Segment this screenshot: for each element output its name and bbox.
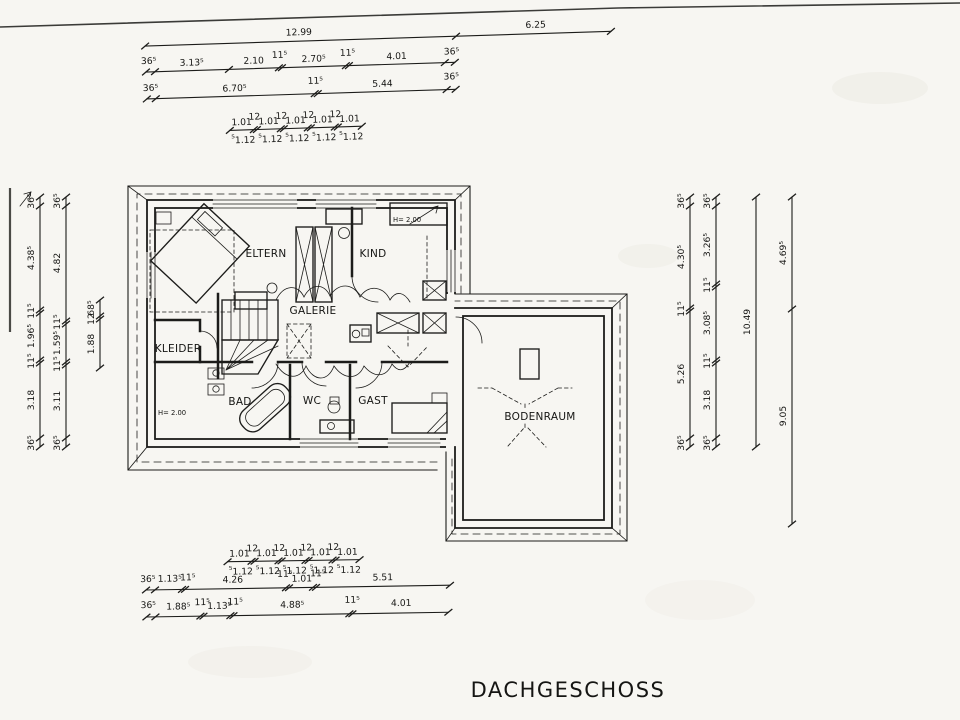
room-label-bodenraum: BODENRAUM [504, 411, 575, 423]
dim-label: 1.12 [343, 131, 364, 143]
room-label-galerie: GALERIE [290, 305, 337, 317]
dim-label: 4.30⁵ [676, 245, 687, 269]
dim-label: 1.12 [340, 565, 361, 576]
dim-label: 11⁵ [227, 596, 243, 607]
dim-label: 36⁵ [143, 83, 159, 94]
dim-label: 1.01 [292, 573, 313, 584]
plan-title: DACHGESCHOSS [471, 678, 666, 702]
dim-label: 1.12 [235, 135, 256, 147]
dim-label: 36⁵ [444, 46, 460, 57]
nightstand [156, 212, 171, 224]
dim-label: 36⁵ [443, 71, 459, 82]
page-edge-line [0, 3, 960, 27]
dim-label: 4.88⁵ [280, 600, 305, 611]
dim-label: 36⁵ [676, 435, 687, 451]
dim-label: 12 [86, 313, 97, 325]
room-label-wc: WC [303, 395, 321, 407]
dim-label: 3.11 [52, 391, 63, 411]
dim-label: 1.59⁵ [52, 331, 63, 355]
dim-label: 11⁵ [310, 568, 326, 579]
dim-label: 11⁵ [344, 595, 360, 606]
dim-label: 1.12 [316, 132, 337, 144]
dim-label: 1.01 [337, 547, 358, 558]
room-label-gast: GAST [358, 395, 388, 407]
dim-label: 3.13⁵ [179, 57, 204, 69]
scanned-floorplan-page: 12.99 6.25 36⁵ 3.13⁵ 2.10 11⁵ 2.70⁵ 11⁵ … [0, 0, 960, 720]
dim-label: 6.70⁵ [222, 83, 247, 95]
floorplan-drawing: 12.99 6.25 36⁵ 3.13⁵ 2.10 11⁵ 2.70⁵ 11⁵ … [0, 0, 960, 720]
dim-label: 11⁵ [702, 353, 713, 369]
interior-walls [155, 208, 447, 439]
dim-label: 11⁵ [26, 353, 37, 369]
dim-label: 36⁵ [702, 435, 713, 451]
dim-label: 5.51 [373, 572, 394, 583]
dim-label: 11⁵ [307, 75, 323, 86]
dim-label: 10.49 [742, 309, 753, 335]
height-note-kleider: H= 2.00 [158, 409, 186, 417]
dim-label: 11⁵ [272, 50, 288, 61]
dim-label: 36⁵ [702, 193, 713, 209]
room-label-bad: BAD [228, 396, 251, 408]
dresser-eltern [235, 283, 277, 309]
dim-label: 36⁵ [140, 600, 156, 611]
dim-label: 4.38⁵ [26, 246, 37, 270]
dim-label: 12.99 [285, 27, 312, 39]
dimensions-left: 36⁵ 4.38⁵ 11⁵ 1.96⁵ 11⁵ 3.18 36⁵ 36⁵ 4.8… [26, 193, 104, 451]
dim-label: 11⁵ [26, 303, 37, 319]
height-note-kind: H= 2.00 [393, 216, 421, 224]
sink-unit-galerie [350, 325, 371, 342]
dim-label: 36⁵ [52, 435, 63, 451]
wardrobes-corridor [377, 281, 446, 333]
dimensions-right: 36⁵ 4.30⁵ 11⁵ 5.26 36⁵ 36⁵ 3.26⁵ 11⁵ 3.0… [676, 193, 796, 527]
dim-label: 6.25 [525, 19, 546, 31]
dim-label: 36⁵ [52, 193, 63, 209]
room-label-kind: KIND [359, 248, 386, 260]
dimensions-top: 12.99 6.25 36⁵ 3.13⁵ 2.10 11⁵ 2.70⁵ 11⁵ … [140, 17, 618, 149]
bed-gast [388, 330, 447, 433]
room-label-eltern: ELTERN [245, 248, 286, 260]
dim-label: 1.12 [262, 134, 283, 146]
dimensions-bottom: 1.01 12 1.01 12 1.01 12 1.01 12 1.01 ⁵ 1… [140, 540, 455, 620]
dim-label: 2.10 [243, 55, 264, 67]
dim-label: 4.01 [391, 598, 412, 609]
dim-label: 11⁵ [277, 569, 293, 580]
dim-label: 1.88 [86, 334, 97, 355]
dim-label: 11⁵ [52, 314, 63, 330]
dim-label: 3.08⁵ [702, 311, 713, 335]
dim-label: 11⁵ [180, 572, 196, 583]
dim-label: 5.26 [676, 364, 687, 385]
room-label-kleider: KLEIDER [155, 343, 202, 355]
dim-label: 4.26 [223, 574, 244, 585]
dim-label: 11⁵ [340, 47, 356, 58]
dim-label: 11⁵ [676, 301, 687, 317]
dim-label: 11⁵ [702, 277, 713, 293]
dim-label: 9.05 [778, 406, 789, 427]
dim-label: 36⁵ [140, 574, 156, 585]
dim-label: 5.44 [372, 78, 393, 90]
dim-label: 1.13⁵ [158, 573, 183, 584]
dim-label: 3.26⁵ [702, 233, 713, 257]
dim-label: 36⁵ [26, 435, 37, 451]
dim-label: 1.96⁵ [26, 324, 37, 348]
dim-label: 4.01 [386, 51, 407, 63]
dim-label: 11⁵ [52, 356, 63, 372]
windows [145, 198, 457, 449]
dim-label: 1.01 [339, 113, 360, 125]
dim-label: 1.12 [289, 133, 310, 145]
dim-label: 4.69⁵ [778, 241, 789, 265]
dim-label: 1.88⁵ [166, 601, 191, 612]
dim-label: 36⁵ [141, 56, 157, 67]
dim-label: 36⁵ [26, 193, 37, 209]
dim-label: 36⁵ [676, 193, 687, 209]
dim-label: 4.82 [52, 253, 63, 273]
dim-label: 3.18 [26, 390, 37, 411]
dim-label: 3.18 [702, 390, 713, 411]
dim-label: 2.70⁵ [301, 53, 326, 65]
